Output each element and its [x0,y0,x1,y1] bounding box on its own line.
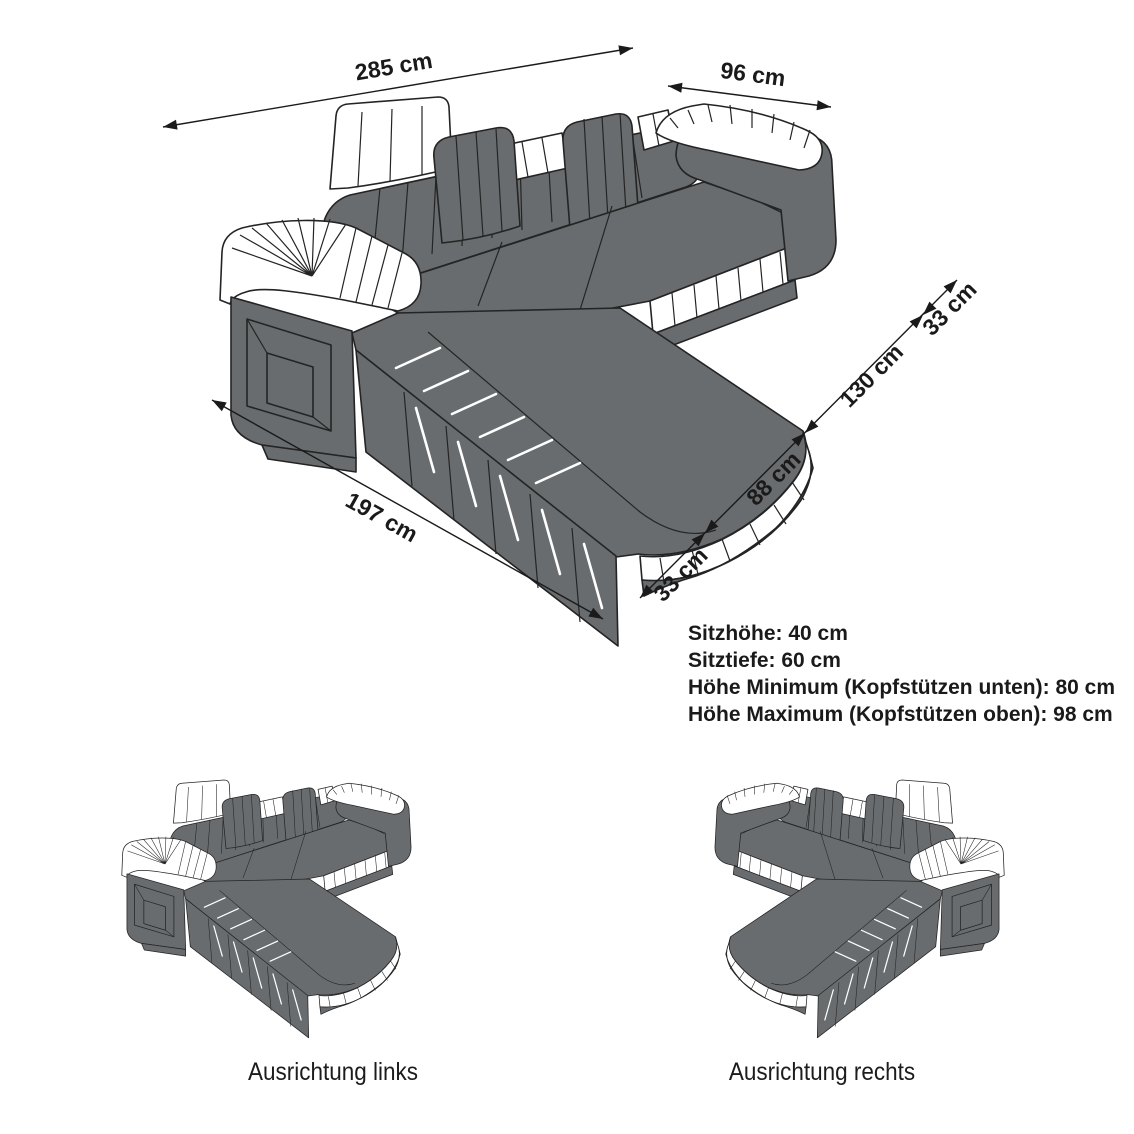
sofa-dimension-page: 285 cm 96 cm 197 cm 33 cm [0,0,1134,1134]
spec-height-min: Höhe Minimum (Kopfstützen unten): 80 cm [688,674,1115,701]
dimension-label-segment-chaise: 130 cm [835,339,909,413]
sofa-thumbnail-orientation-right [706,772,1016,1042]
sofa-main-view [220,97,836,646]
spec-seat-height: Sitzhöhe: 40 cm [688,620,1115,647]
sofa-thumbnail-orientation-left [110,772,420,1042]
dimension-label-total-width: 285 cm [353,47,434,86]
variant-caption-left: Ausrichtung links [198,1058,468,1087]
spec-text-block: Sitzhöhe: 40 cm Sitztiefe: 60 cm Höhe Mi… [688,620,1115,728]
spec-height-max: Höhe Maximum (Kopfstützen oben): 98 cm [688,701,1115,728]
dimension-label-arm-depth: 96 cm [719,57,787,91]
variant-caption-right: Ausrichtung rechts [687,1058,957,1087]
dimension-arm-depth: 96 cm [668,57,831,110]
spec-seat-depth: Sitztiefe: 60 cm [688,647,1115,674]
